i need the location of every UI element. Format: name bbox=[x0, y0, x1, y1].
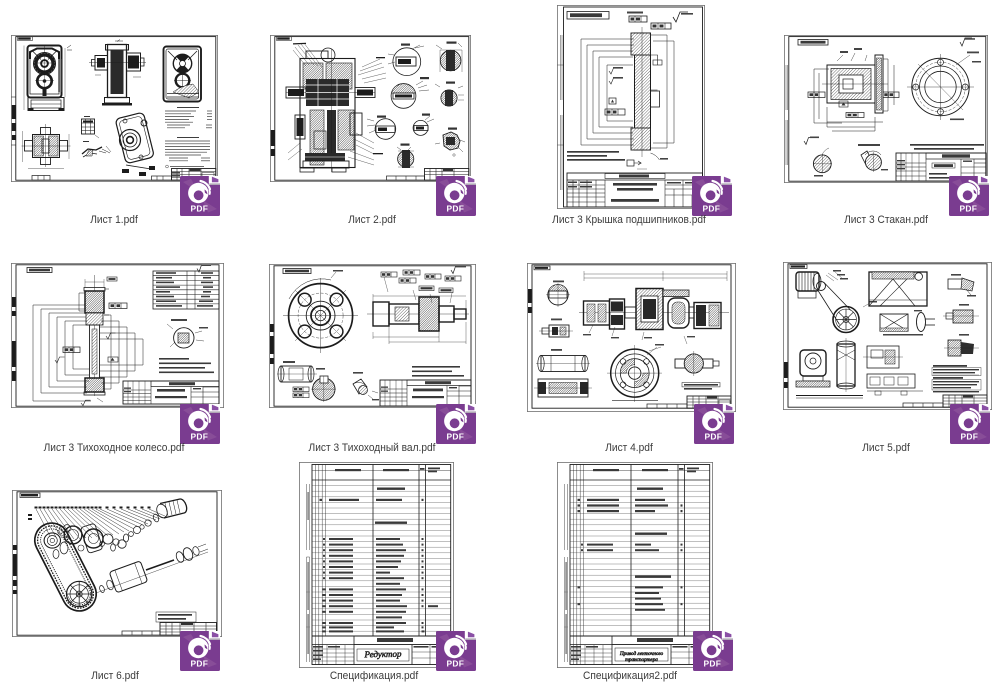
svg-text:Привод ленточного: Привод ленточного bbox=[619, 650, 664, 657]
svg-text:Редуктор: Редуктор bbox=[363, 649, 402, 660]
svg-text:транспортера: транспортера bbox=[625, 657, 658, 663]
